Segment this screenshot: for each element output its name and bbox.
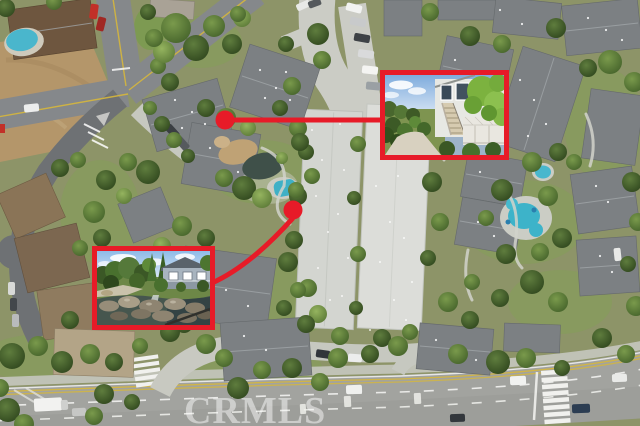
callout-dot-lower bbox=[284, 201, 303, 220]
window bbox=[183, 272, 192, 280]
box-truck bbox=[34, 397, 63, 411]
annotated-aerial-photo: CRMLS bbox=[0, 0, 640, 426]
window bbox=[169, 272, 178, 280]
window bbox=[441, 85, 452, 100]
inset-photo-upper bbox=[380, 70, 509, 160]
callout-dot-upper bbox=[216, 111, 235, 130]
inset-photo-lower bbox=[92, 246, 215, 330]
pond-community-photo bbox=[97, 251, 210, 325]
property-exterior-photo bbox=[385, 75, 504, 155]
blue-car bbox=[572, 404, 590, 414]
aerial-photo bbox=[0, 0, 640, 426]
watermark-crmls: CRMLS bbox=[184, 392, 326, 426]
